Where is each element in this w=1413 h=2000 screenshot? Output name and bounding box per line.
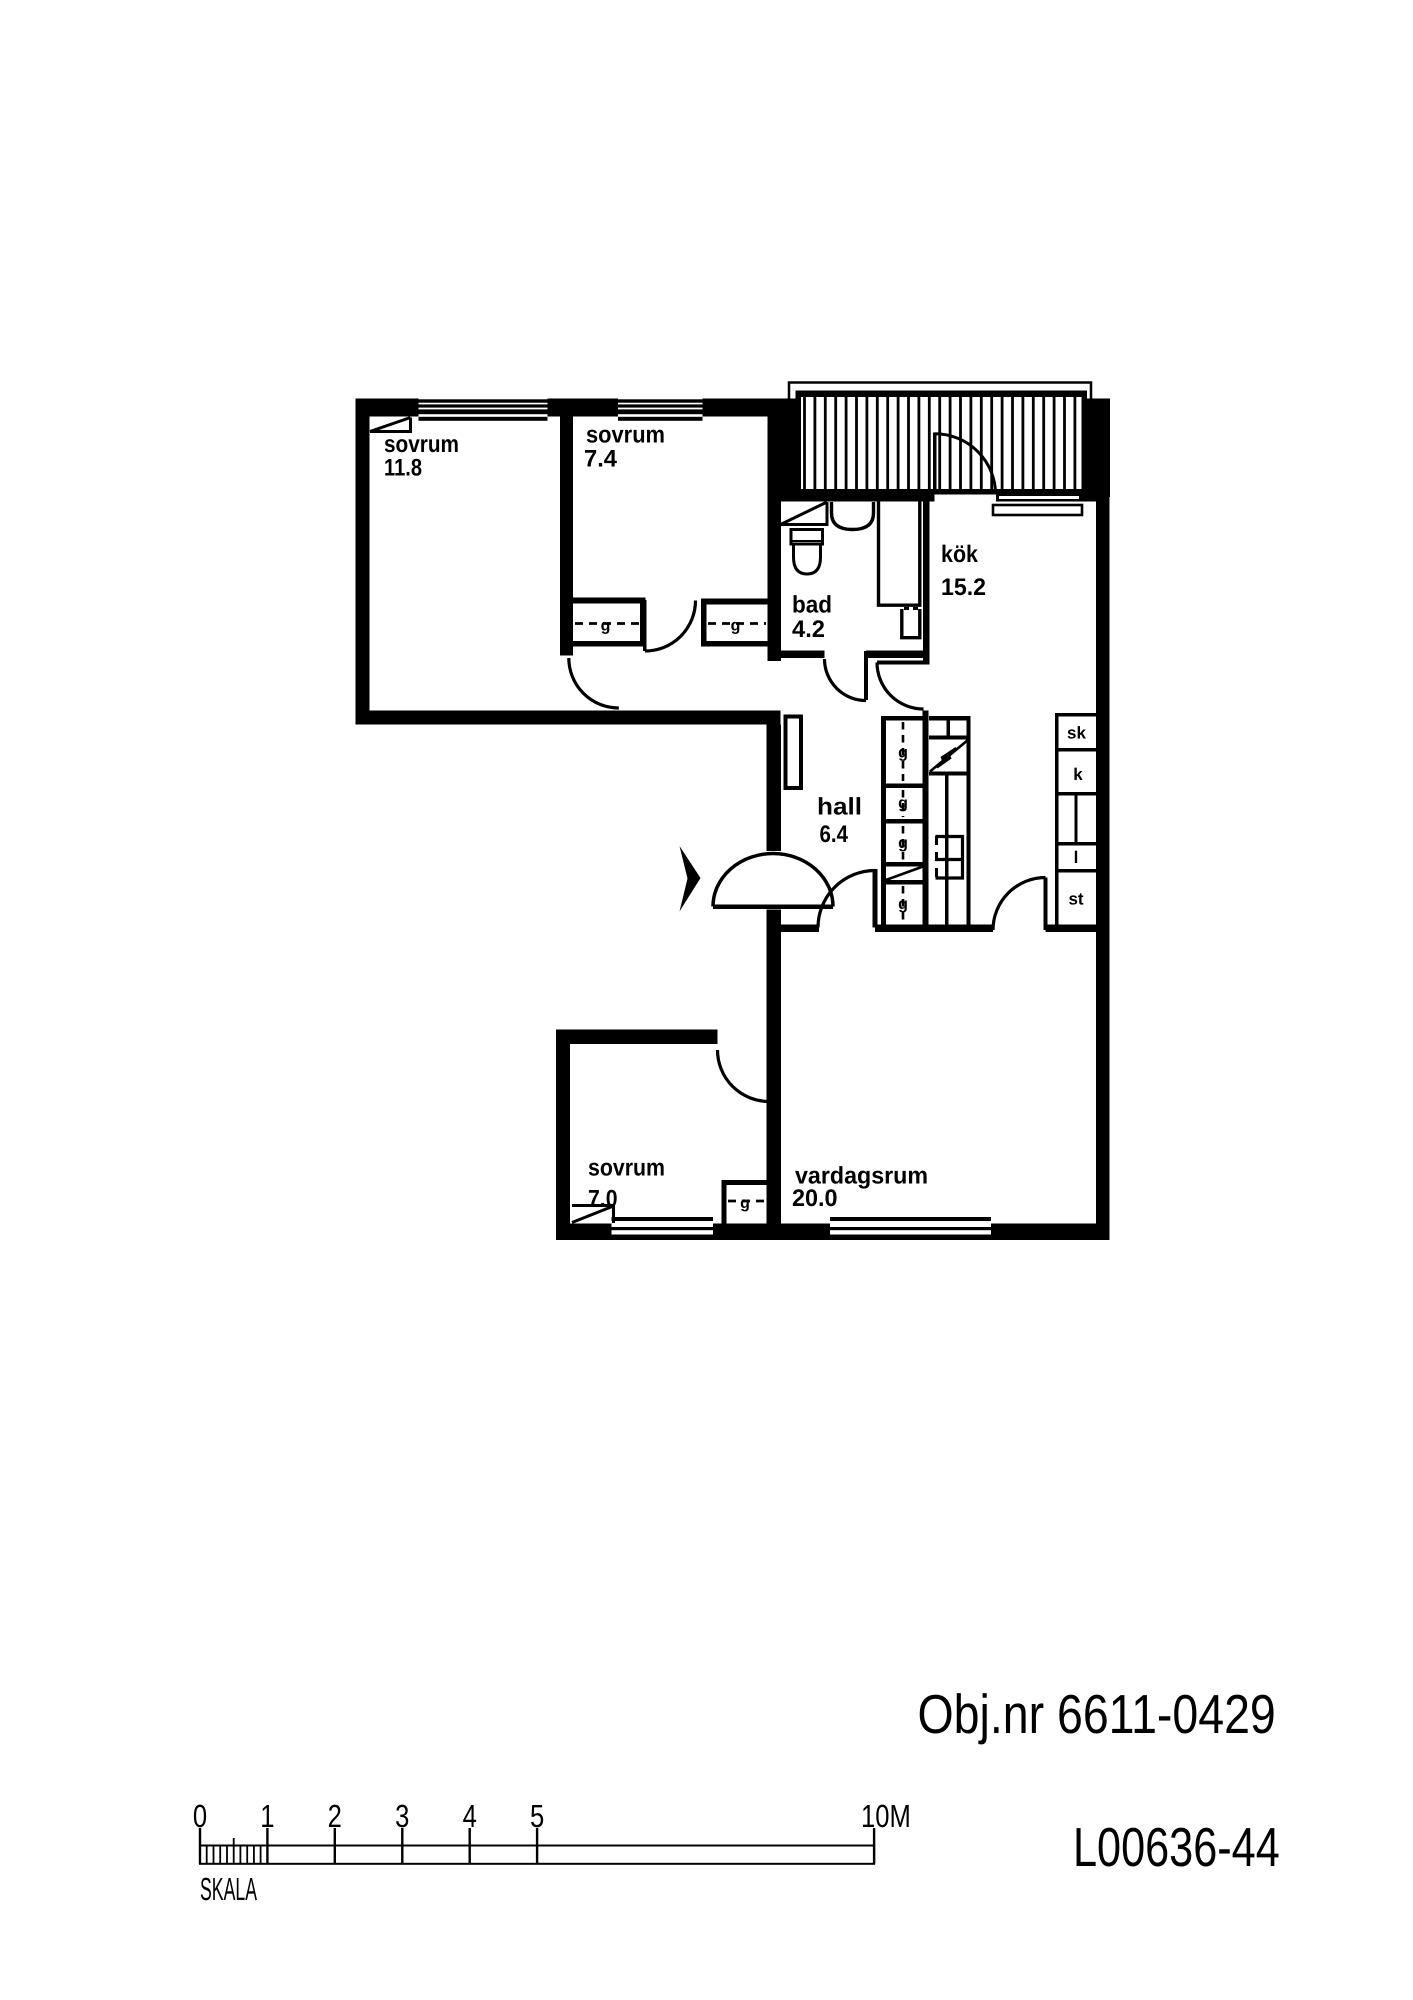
svg-text:g: g [898,896,908,913]
svg-text:st: st [1068,890,1083,909]
svg-text:SKALA: SKALA [200,1871,257,1907]
svg-text:4: 4 [463,1798,477,1834]
svg-text:15.2: 15.2 [941,574,986,601]
svg-text:sovrum: sovrum [586,422,665,449]
svg-text:7.4: 7.4 [584,446,618,473]
svg-text:Obj.nr 6611-0429: Obj.nr 6611-0429 [918,1683,1276,1745]
svg-text:7.0: 7.0 [588,1186,618,1213]
svg-text:6.4: 6.4 [820,821,849,848]
svg-text:20.0: 20.0 [792,1185,838,1212]
svg-text:11.8: 11.8 [384,455,422,482]
svg-text:kök: kök [941,541,979,568]
svg-text:3: 3 [395,1798,409,1834]
svg-text:g: g [898,835,908,852]
svg-text:0: 0 [193,1798,207,1834]
svg-text:5: 5 [530,1798,544,1834]
svg-text:sk: sk [1067,724,1086,743]
svg-text:g: g [898,795,908,812]
svg-text:10M: 10M [861,1798,911,1834]
svg-text:g: g [740,1195,750,1212]
svg-text:2: 2 [328,1798,342,1834]
svg-text:hall: hall [817,794,862,821]
svg-text:g: g [731,618,741,635]
svg-text:k: k [1073,765,1083,784]
svg-text:g: g [898,745,908,762]
svg-text:L00636-44: L00636-44 [1073,1816,1280,1878]
svg-text:sovrum: sovrum [588,1155,665,1182]
svg-text:l: l [1074,848,1079,867]
svg-text:bad: bad [792,592,832,619]
svg-text:g: g [601,618,611,635]
svg-text:4.2: 4.2 [792,616,825,643]
svg-text:1: 1 [260,1798,274,1834]
